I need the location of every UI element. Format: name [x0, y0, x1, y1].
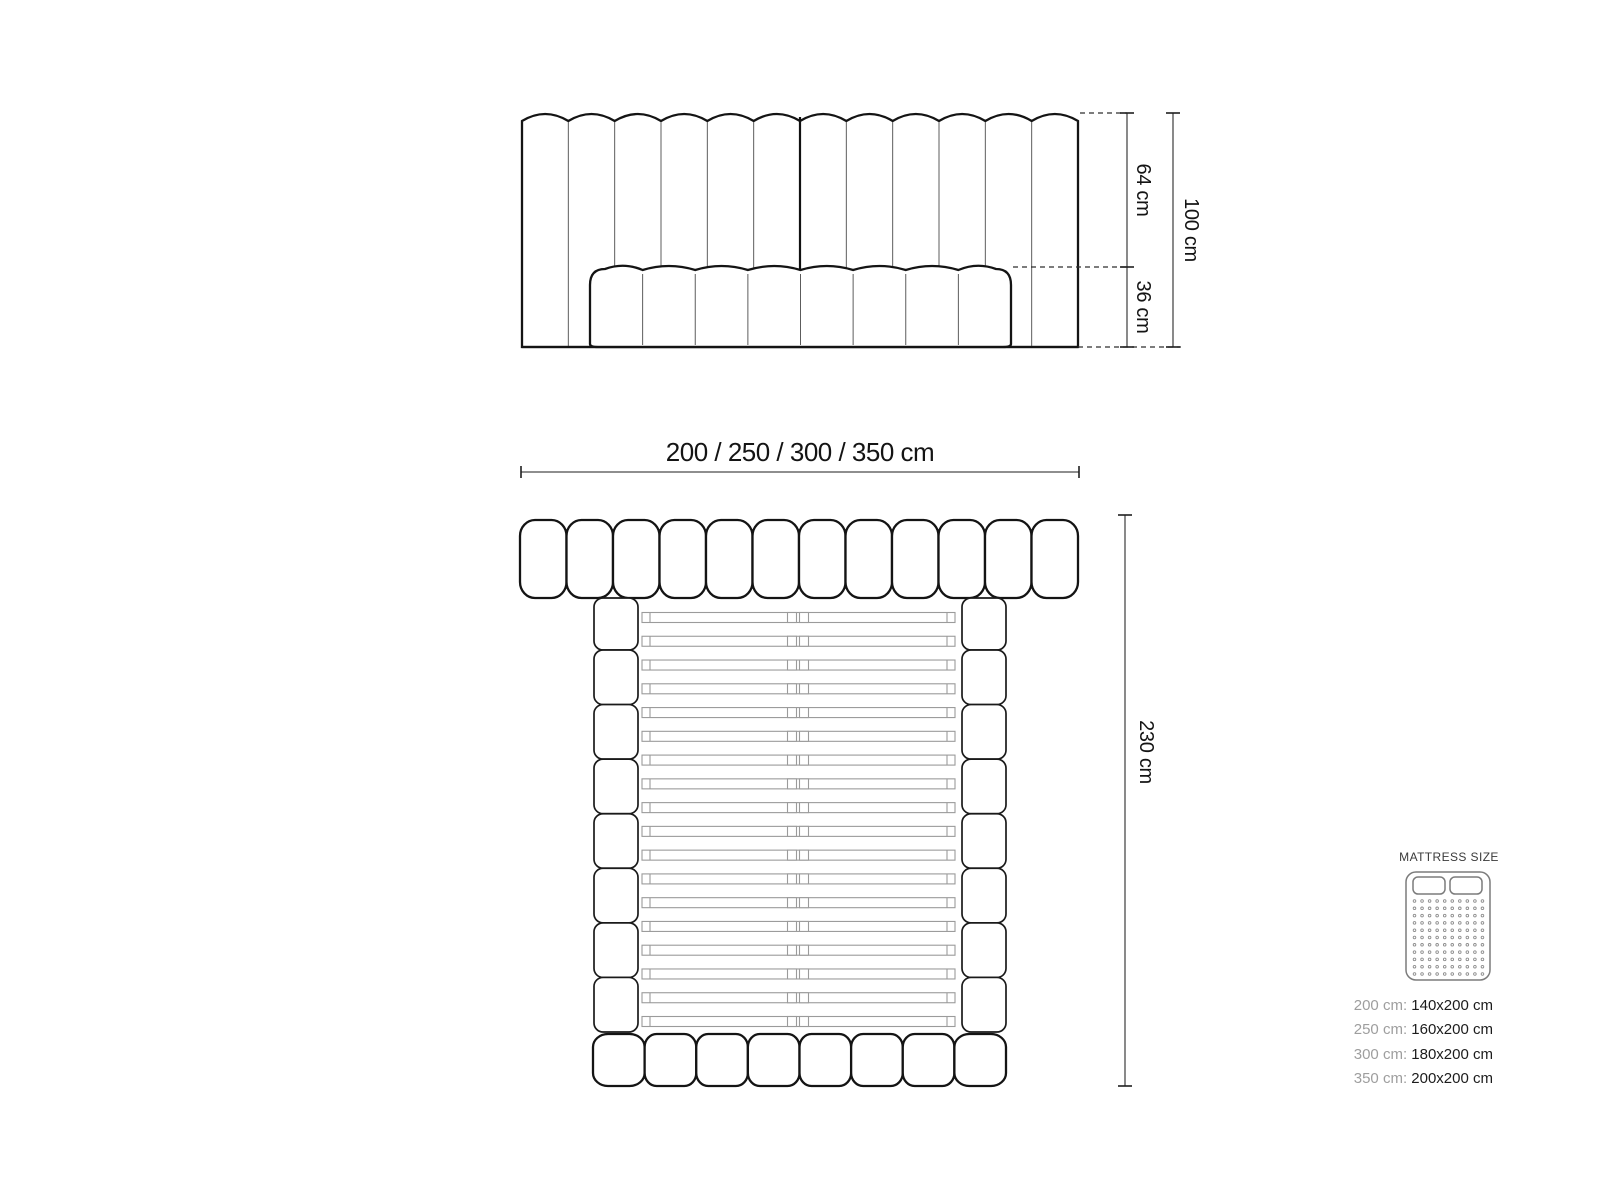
- footboard-cushion: [800, 1034, 852, 1086]
- slat-bar: [642, 874, 955, 884]
- footboard-cushion: [851, 1034, 903, 1086]
- tuft-dot: [1451, 936, 1454, 939]
- slat: [642, 826, 955, 836]
- tuft-dot: [1428, 929, 1431, 932]
- plan-length-dimension: 230 cm: [1118, 515, 1157, 1086]
- slat-center-joint: [800, 636, 809, 646]
- tuft-dot: [1481, 929, 1484, 932]
- slat-center-joint: [788, 613, 797, 623]
- tuft-dot: [1436, 944, 1439, 947]
- right-rail-segment: [962, 598, 1006, 650]
- right-rail-segment: [962, 705, 1006, 760]
- tuft-dot: [1481, 907, 1484, 910]
- slat-center-joint: [800, 779, 809, 789]
- bed-plan-view: [520, 520, 1078, 1086]
- slat-center-joint: [800, 969, 809, 979]
- tuft-dot: [1459, 929, 1462, 932]
- slat-center-joint: [800, 945, 809, 955]
- tuft-dot: [1459, 900, 1462, 903]
- right-rail-segment: [962, 977, 1006, 1032]
- headboard-pill: [1032, 520, 1079, 598]
- slat: [642, 969, 955, 979]
- tuft-dot: [1451, 958, 1454, 961]
- tuft-dot: [1436, 958, 1439, 961]
- right-rail-segment: [962, 923, 1006, 978]
- slat-bar: [642, 708, 955, 718]
- slat-center-joint: [800, 921, 809, 931]
- tuft-dot: [1421, 907, 1424, 910]
- tuft-dot: [1413, 951, 1416, 954]
- tuft-dot: [1428, 907, 1431, 910]
- tuft-dot: [1481, 958, 1484, 961]
- slat-center-joint: [788, 755, 797, 765]
- tuft-dot: [1428, 951, 1431, 954]
- mattress-size-row: 200 cm: 140x200 cm: [1323, 994, 1493, 1018]
- tuft-dot: [1451, 951, 1454, 954]
- left-rail-segment: [594, 759, 638, 814]
- slat-center-joint: [800, 850, 809, 860]
- headboard-pill: [939, 520, 986, 598]
- tuft-dot: [1481, 922, 1484, 925]
- slat-center-joint: [788, 731, 797, 741]
- tuft-dot: [1474, 944, 1477, 947]
- tuft-dot: [1413, 973, 1416, 976]
- slat: [642, 755, 955, 765]
- tuft-dot: [1443, 973, 1446, 976]
- footboard-cushion: [903, 1034, 955, 1086]
- tuft-dot: [1481, 951, 1484, 954]
- left-rail-segment: [594, 705, 638, 760]
- right-rail-segment: [962, 759, 1006, 814]
- right-rail-segment: [962, 650, 1006, 705]
- left-rail-segment: [594, 923, 638, 978]
- slat: [642, 1017, 955, 1027]
- tuft-dot: [1428, 944, 1431, 947]
- tuft-dot: [1436, 936, 1439, 939]
- tuft-dot: [1428, 965, 1431, 968]
- slat-bar: [642, 803, 955, 813]
- tuft-dot: [1413, 936, 1416, 939]
- slat-bar: [642, 898, 955, 908]
- tuft-dot: [1451, 907, 1454, 910]
- legend-size-value: 160x200 cm: [1411, 1021, 1493, 1038]
- slat-center-joint: [788, 850, 797, 860]
- slat-center-joint: [800, 874, 809, 884]
- tuft-dot: [1481, 973, 1484, 976]
- slat-center-joint: [800, 755, 809, 765]
- slat-bar: [642, 921, 955, 931]
- slat: [642, 874, 955, 884]
- slat: [642, 993, 955, 1003]
- tuft-dot: [1451, 900, 1454, 903]
- tuft-dot: [1459, 965, 1462, 968]
- slat-bar: [642, 826, 955, 836]
- slat-center-joint: [788, 1017, 797, 1027]
- headboard-front-view: [522, 114, 1078, 347]
- tuft-dot: [1451, 973, 1454, 976]
- slat-center-joint: [800, 660, 809, 670]
- slat-center-joint: [788, 779, 797, 789]
- tuft-dot: [1474, 914, 1477, 917]
- tuft-dot: [1436, 929, 1439, 932]
- slat-center-joint: [800, 993, 809, 1003]
- headboard-pill: [613, 520, 660, 598]
- double-mattress-top-icon: [1406, 872, 1490, 980]
- pillow-right: [1450, 877, 1482, 894]
- left-rail-segment: [594, 598, 638, 650]
- slat-center-joint: [788, 684, 797, 694]
- tuft-dot: [1443, 944, 1446, 947]
- dim-label-36cm: 36 cm: [1132, 281, 1154, 334]
- tuft-dot: [1466, 900, 1469, 903]
- tuft-dot: [1451, 922, 1454, 925]
- footboard-cushion: [954, 1034, 1006, 1086]
- tuft-dot: [1481, 944, 1484, 947]
- tuft-dot: [1466, 944, 1469, 947]
- legend-size-value: 180x200 cm: [1411, 1046, 1493, 1063]
- tuft-dot: [1421, 951, 1424, 954]
- slat: [642, 779, 955, 789]
- tuft-dot: [1436, 973, 1439, 976]
- left-rail-segment: [594, 814, 638, 869]
- tuft-dot: [1413, 922, 1416, 925]
- headboard-pill: [520, 520, 567, 598]
- slat: [642, 850, 955, 860]
- tuft-dot: [1459, 936, 1462, 939]
- slat: [642, 684, 955, 694]
- bed-dimension-diagram: 64 cm 36 cm 100 cm 200 / 250 / 300 / 350…: [0, 0, 1600, 1200]
- slat-center-joint: [788, 969, 797, 979]
- tuft-dot: [1459, 951, 1462, 954]
- tuft-dot: [1459, 907, 1462, 910]
- slat: [642, 731, 955, 741]
- tuft-dot: [1421, 929, 1424, 932]
- tuft-dot: [1443, 900, 1446, 903]
- legend-size-prefix: 200 cm:: [1354, 997, 1412, 1014]
- headboard-pill: [706, 520, 753, 598]
- mattress-size-table: 200 cm: 140x200 cm250 cm: 160x200 cm300 …: [1323, 994, 1493, 1091]
- tuft-dot: [1459, 973, 1462, 976]
- mattress-size-row: 250 cm: 160x200 cm: [1323, 1018, 1493, 1042]
- slat-bar: [642, 945, 955, 955]
- slat-bar: [642, 660, 955, 670]
- tuft-dot: [1481, 965, 1484, 968]
- slat-center-joint: [788, 803, 797, 813]
- slat-bar: [642, 731, 955, 741]
- tuft-dot: [1436, 951, 1439, 954]
- tuft-dot: [1413, 900, 1416, 903]
- slat-center-joint: [788, 660, 797, 670]
- tuft-dot: [1466, 907, 1469, 910]
- tuft-dot: [1466, 951, 1469, 954]
- tuft-dot: [1428, 922, 1431, 925]
- slat-bar: [642, 684, 955, 694]
- tuft-dot: [1451, 944, 1454, 947]
- tuft-dot: [1413, 907, 1416, 910]
- slat-center-joint: [800, 803, 809, 813]
- slat-center-joint: [788, 921, 797, 931]
- slat-center-joint: [788, 874, 797, 884]
- width-dimension: 200 / 250 / 300 / 350 cm: [521, 437, 1079, 478]
- legend-size-prefix: 300 cm:: [1354, 1046, 1412, 1063]
- slat: [642, 708, 955, 718]
- tuft-dot: [1428, 936, 1431, 939]
- slat-bar: [642, 1017, 955, 1027]
- tuft-dot: [1474, 936, 1477, 939]
- slat: [642, 803, 955, 813]
- left-rail-segment: [594, 650, 638, 705]
- tuft-dot: [1443, 965, 1446, 968]
- legend-size-value: 200x200 cm: [1411, 1070, 1493, 1087]
- footboard-cushion: [593, 1034, 645, 1086]
- mattress-size-row: 350 cm: 200x200 cm: [1323, 1067, 1493, 1091]
- slat: [642, 660, 955, 670]
- tuft-dot: [1451, 914, 1454, 917]
- tuft-dot: [1428, 914, 1431, 917]
- tuft-dot: [1421, 944, 1424, 947]
- left-rail-segment: [594, 977, 638, 1032]
- mattress-size-row: 300 cm: 180x200 cm: [1323, 1043, 1493, 1067]
- tuft-dot: [1436, 914, 1439, 917]
- tuft-dot: [1459, 914, 1462, 917]
- slat: [642, 921, 955, 931]
- tuft-dot: [1413, 958, 1416, 961]
- headboard-pill: [799, 520, 846, 598]
- slat-center-joint: [788, 708, 797, 718]
- footboard-cushion: [696, 1034, 748, 1086]
- slat-center-joint: [800, 684, 809, 694]
- slat-bar: [642, 636, 955, 646]
- slat-bar: [642, 993, 955, 1003]
- tuft-dot: [1481, 936, 1484, 939]
- dim-label-64cm: 64 cm: [1132, 164, 1154, 217]
- tuft-dot: [1421, 965, 1424, 968]
- headboard-pill: [892, 520, 939, 598]
- tuft-dot: [1428, 900, 1431, 903]
- tuft-dot: [1428, 958, 1431, 961]
- tuft-dot: [1443, 951, 1446, 954]
- tuft-dot: [1428, 973, 1431, 976]
- slat-center-joint: [788, 826, 797, 836]
- slat-bar: [642, 779, 955, 789]
- slat-center-joint: [800, 826, 809, 836]
- pillow-left: [1413, 877, 1445, 894]
- tuft-dot: [1466, 965, 1469, 968]
- tuft-dot: [1436, 907, 1439, 910]
- tuft-dot: [1459, 958, 1462, 961]
- dim-label-230cm: 230 cm: [1135, 720, 1157, 784]
- tuft-dot: [1466, 929, 1469, 932]
- slat-bar: [642, 850, 955, 860]
- footboard-cushion: [748, 1034, 800, 1086]
- tuft-dot: [1436, 922, 1439, 925]
- tuft-dot: [1466, 914, 1469, 917]
- tuft-dot: [1421, 958, 1424, 961]
- tuft-dot: [1474, 958, 1477, 961]
- tuft-dot: [1466, 936, 1469, 939]
- tuft-dot: [1474, 973, 1477, 976]
- slat-bar: [642, 613, 955, 623]
- headboard-pill: [753, 520, 800, 598]
- tuft-dot: [1443, 907, 1446, 910]
- tuft-dot: [1413, 965, 1416, 968]
- tuft-dot: [1443, 929, 1446, 932]
- dim-label-widths: 200 / 250 / 300 / 350 cm: [666, 437, 934, 467]
- tuft-dot: [1474, 965, 1477, 968]
- tuft-dot: [1459, 922, 1462, 925]
- slat-center-joint: [788, 993, 797, 1003]
- slat-center-joint: [800, 731, 809, 741]
- footboard-cushion: [645, 1034, 697, 1086]
- tuft-dot: [1436, 900, 1439, 903]
- tuft-dot: [1466, 973, 1469, 976]
- legend-size-prefix: 250 cm:: [1354, 1021, 1412, 1038]
- slat-center-joint: [800, 613, 809, 623]
- tuft-dot: [1421, 973, 1424, 976]
- tuft-dot: [1481, 914, 1484, 917]
- headboard-pill: [660, 520, 707, 598]
- tuft-dot: [1421, 914, 1424, 917]
- headboard-pill: [846, 520, 893, 598]
- legend-size-value: 140x200 cm: [1411, 997, 1493, 1014]
- tuft-dot: [1413, 944, 1416, 947]
- slat-center-joint: [800, 898, 809, 908]
- slat-center-joint: [800, 1017, 809, 1027]
- slat: [642, 613, 955, 623]
- tuft-dot: [1443, 914, 1446, 917]
- tuft-dot: [1421, 922, 1424, 925]
- slat: [642, 898, 955, 908]
- tuft-dot: [1443, 936, 1446, 939]
- slat-center-joint: [788, 945, 797, 955]
- tuft-dot: [1474, 951, 1477, 954]
- tuft-dot: [1421, 900, 1424, 903]
- tuft-dot: [1443, 958, 1446, 961]
- right-rail-segment: [962, 814, 1006, 869]
- dim-label-100cm: 100 cm: [1180, 198, 1202, 262]
- tuft-dot: [1466, 958, 1469, 961]
- tuft-dot: [1474, 929, 1477, 932]
- legend-size-prefix: 350 cm:: [1354, 1070, 1412, 1087]
- legend-title: MATTRESS SIZE: [1369, 850, 1529, 864]
- slat-bar: [642, 755, 955, 765]
- slat: [642, 636, 955, 646]
- headboard-pill: [985, 520, 1032, 598]
- tuft-dot: [1459, 944, 1462, 947]
- tuft-dot: [1421, 936, 1424, 939]
- tuft-dot: [1474, 922, 1477, 925]
- tuft-dot: [1436, 965, 1439, 968]
- right-rail-segment: [962, 868, 1006, 923]
- slat-center-joint: [800, 708, 809, 718]
- slat-bar: [642, 969, 955, 979]
- tuft-dot: [1451, 929, 1454, 932]
- tuft-dot: [1443, 922, 1446, 925]
- left-rail-segment: [594, 868, 638, 923]
- slat: [642, 945, 955, 955]
- tuft-dot: [1413, 914, 1416, 917]
- tuft-dot: [1466, 922, 1469, 925]
- tuft-dot: [1413, 929, 1416, 932]
- tuft-dot: [1474, 907, 1477, 910]
- tuft-dot: [1474, 900, 1477, 903]
- slat-center-joint: [788, 636, 797, 646]
- tuft-dot: [1481, 900, 1484, 903]
- tuft-dot: [1451, 965, 1454, 968]
- slat-center-joint: [788, 898, 797, 908]
- headboard-pill: [567, 520, 614, 598]
